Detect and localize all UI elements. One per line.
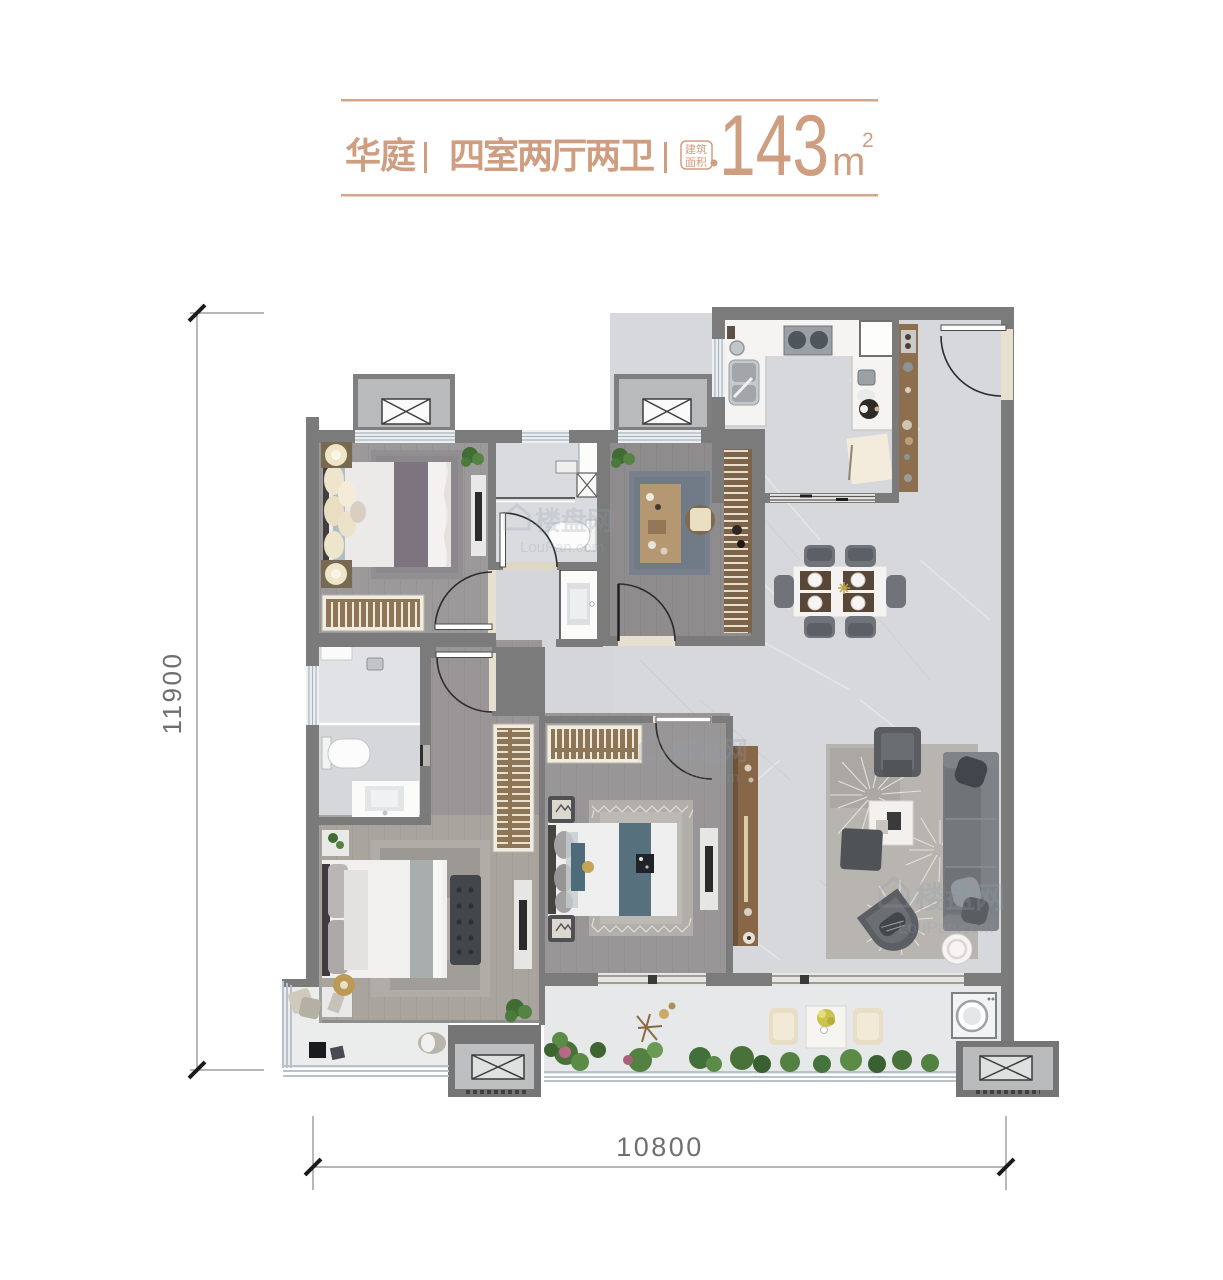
svg-text:楼盘网: 楼盘网 <box>915 881 1005 915</box>
svg-text:面积: 面积 <box>685 156 707 169</box>
svg-text:11900: 11900 <box>157 652 187 735</box>
svg-text:LouPan.com: LouPan.com <box>898 918 993 937</box>
svg-text:LouPan.com: LouPan.com <box>520 539 604 556</box>
svg-text:m: m <box>832 140 865 184</box>
svg-text:建筑: 建筑 <box>685 142 707 156</box>
svg-text:楼盘网: 楼盘网 <box>535 506 613 536</box>
svg-text:10800: 10800 <box>616 1132 704 1162</box>
svg-text:LouPan.com: LouPan.com <box>655 769 739 786</box>
svg-text:楼盘网: 楼盘网 <box>670 736 748 766</box>
svg-text:华庭: 华庭 <box>345 135 416 176</box>
svg-text:四室两厅两卫: 四室两厅两卫 <box>449 135 654 176</box>
svg-text:2: 2 <box>862 129 874 152</box>
svg-text:143: 143 <box>719 98 829 194</box>
